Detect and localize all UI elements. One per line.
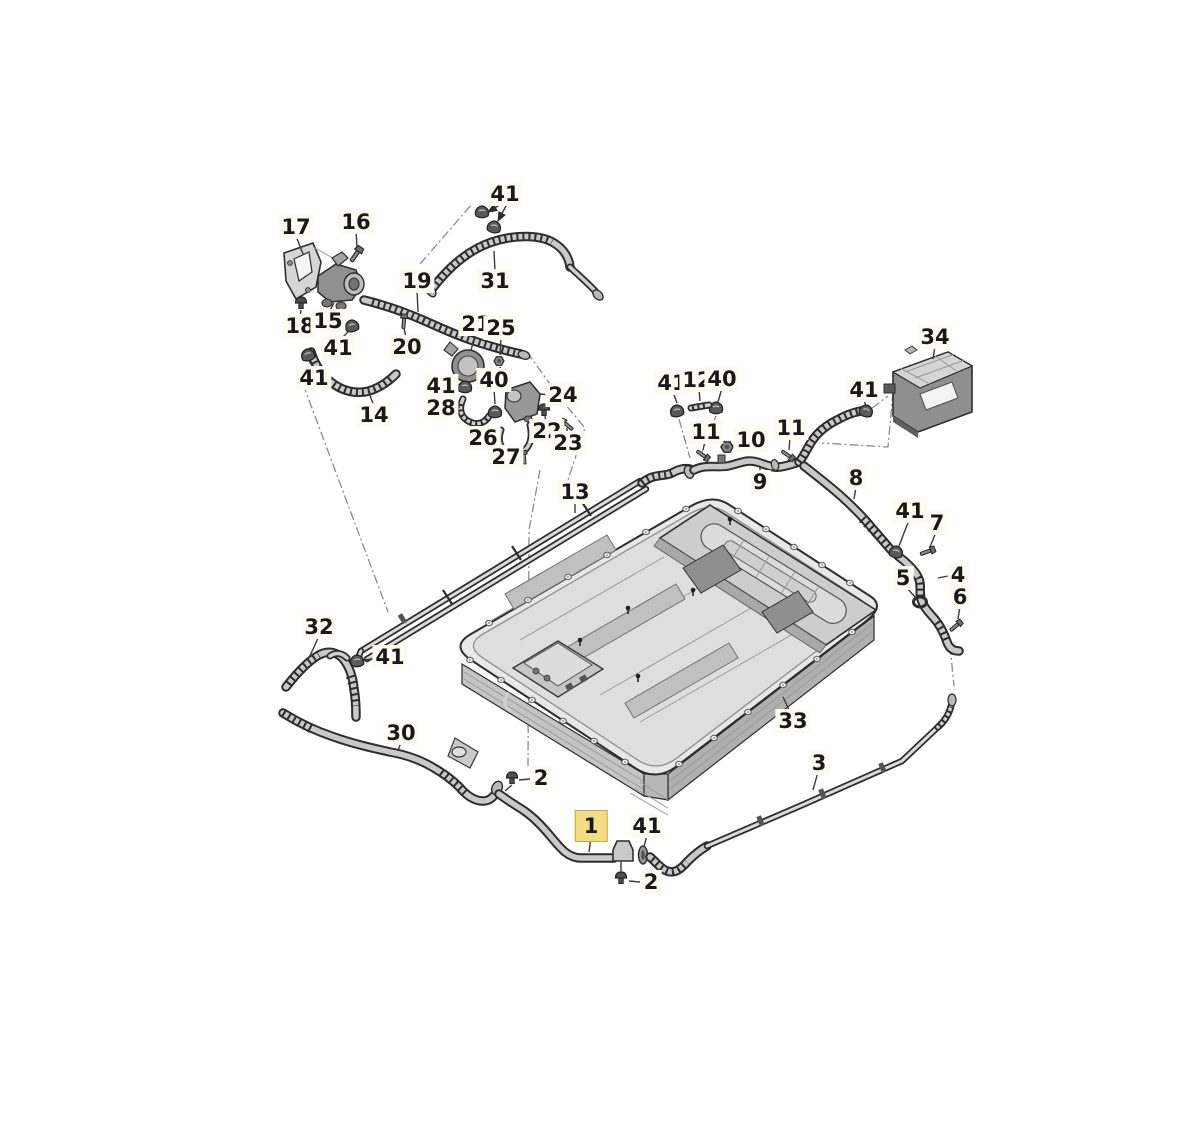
part-label-2[interactable]: 2 bbox=[641, 870, 662, 894]
part-label-41[interactable]: 41 bbox=[629, 814, 664, 838]
hose-1 bbox=[499, 794, 648, 864]
part-label-3[interactable]: 3 bbox=[809, 751, 830, 775]
part-label-20[interactable]: 20 bbox=[389, 335, 424, 359]
part-label-14[interactable]: 14 bbox=[356, 403, 391, 427]
part-label-19[interactable]: 19 bbox=[399, 269, 434, 293]
part-label-41[interactable]: 41 bbox=[372, 645, 407, 669]
hose-31 bbox=[424, 236, 605, 302]
part-label-41[interactable]: 41 bbox=[320, 336, 355, 360]
part-label-13[interactable]: 13 bbox=[557, 480, 592, 504]
part-label-33[interactable]: 33 bbox=[775, 709, 810, 733]
part-label-5[interactable]: 5 bbox=[893, 566, 914, 590]
parts-diagram-page: 1716411931181541202125411441402824222326… bbox=[0, 0, 1200, 1146]
part-label-27[interactable]: 27 bbox=[488, 445, 523, 469]
part-label-40[interactable]: 40 bbox=[476, 368, 511, 392]
part-label-32[interactable]: 32 bbox=[301, 615, 336, 639]
part-label-1-selected[interactable]: 1 bbox=[575, 810, 608, 842]
part-label-7[interactable]: 7 bbox=[927, 511, 948, 535]
part-label-11[interactable]: 11 bbox=[773, 416, 808, 440]
part-label-41[interactable]: 41 bbox=[296, 366, 331, 390]
part-label-15[interactable]: 15 bbox=[310, 309, 345, 333]
part-label-17[interactable]: 17 bbox=[278, 215, 313, 239]
part-label-31[interactable]: 31 bbox=[477, 269, 512, 293]
part-label-28[interactable]: 28 bbox=[423, 396, 458, 420]
part-label-23[interactable]: 23 bbox=[550, 431, 585, 455]
hose-32 bbox=[286, 652, 356, 717]
part-label-10[interactable]: 10 bbox=[733, 428, 768, 452]
part-label-25[interactable]: 25 bbox=[483, 316, 518, 340]
part-label-9[interactable]: 9 bbox=[750, 470, 771, 494]
hose-28 bbox=[460, 399, 489, 424]
part-label-6[interactable]: 6 bbox=[950, 585, 971, 609]
diagram-canvas bbox=[0, 0, 1200, 1146]
part-label-40[interactable]: 40 bbox=[704, 367, 739, 391]
part-label-11[interactable]: 11 bbox=[688, 420, 723, 444]
part-label-30[interactable]: 30 bbox=[383, 721, 418, 745]
part-label-41[interactable]: 41 bbox=[892, 499, 927, 523]
part-label-2[interactable]: 2 bbox=[531, 766, 552, 790]
part-label-34[interactable]: 34 bbox=[917, 325, 952, 349]
unit-34 bbox=[884, 340, 972, 438]
part-label-4[interactable]: 4 bbox=[948, 563, 969, 587]
part-label-41[interactable]: 41 bbox=[423, 374, 458, 398]
part-label-41[interactable]: 41 bbox=[846, 378, 881, 402]
part-label-24[interactable]: 24 bbox=[545, 383, 580, 407]
part-label-16[interactable]: 16 bbox=[338, 210, 373, 234]
part-label-8[interactable]: 8 bbox=[846, 466, 867, 490]
part-label-41[interactable]: 41 bbox=[487, 182, 522, 206]
valve-15 bbox=[318, 252, 364, 310]
